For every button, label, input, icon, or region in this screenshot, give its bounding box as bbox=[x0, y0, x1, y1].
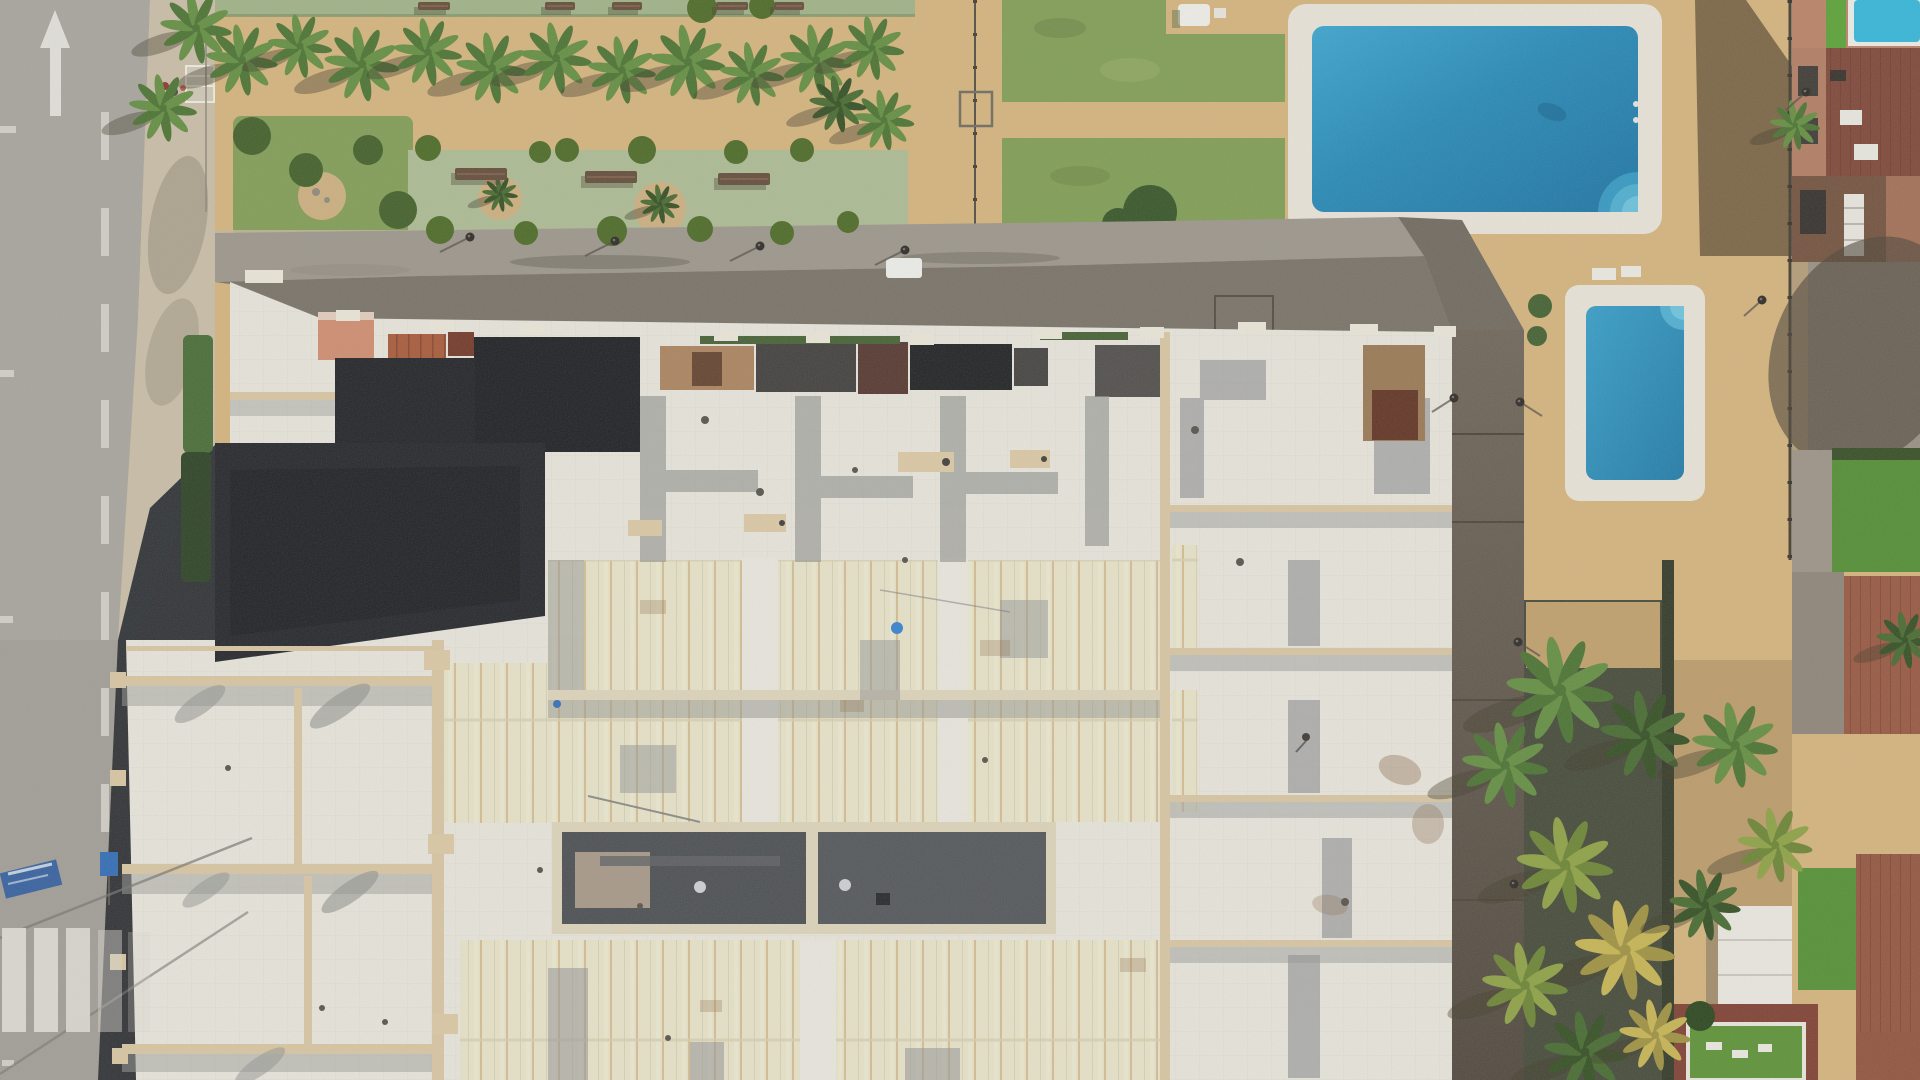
aerial-photo-canvas bbox=[0, 0, 1920, 1080]
photo-grain bbox=[0, 0, 1920, 1080]
scene-root bbox=[0, 0, 1920, 1080]
aerial-photo bbox=[0, 0, 1920, 1080]
